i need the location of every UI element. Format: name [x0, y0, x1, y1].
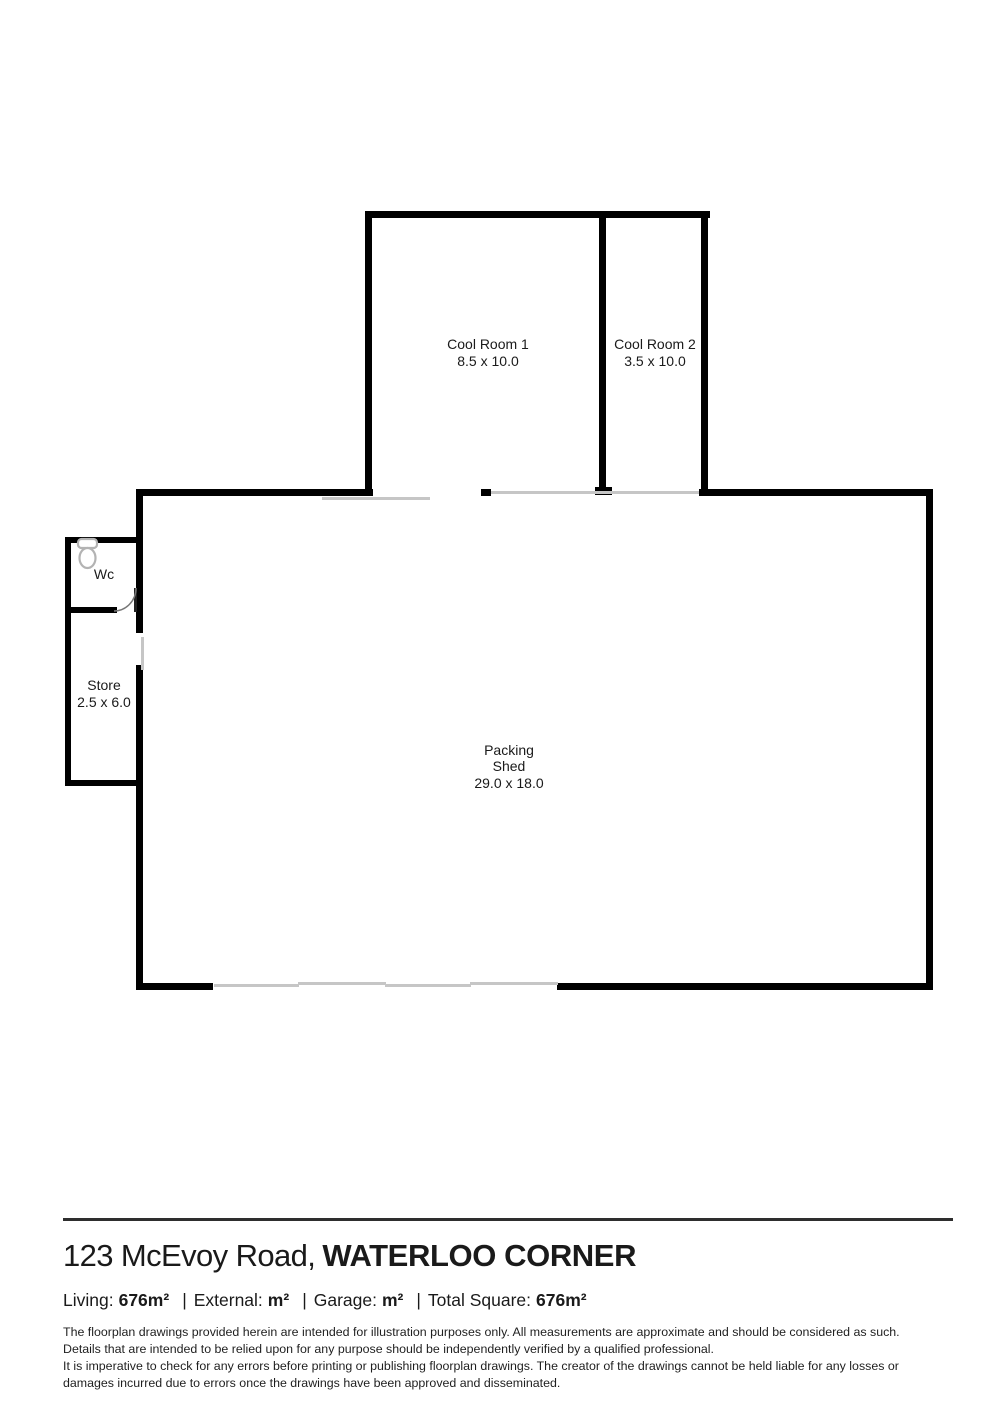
wc-door	[114, 588, 137, 612]
cool-room-1-dimensions: 8.5 x 10.0	[457, 353, 519, 369]
door-swing-arc	[114, 588, 136, 611]
packing-shed-label-line1: Packing	[484, 742, 534, 758]
total-square-label: Total Square:	[428, 1290, 531, 1310]
toilet-icon	[78, 539, 97, 568]
area-stats: Living:676m²|External:m²|Garage:m²|Total…	[63, 1290, 587, 1311]
stats-separator: |	[182, 1290, 187, 1310]
disclaimer-line: Details that are intended to be relied u…	[63, 1341, 948, 1358]
stats-separator: |	[302, 1290, 307, 1310]
garage-label: Garage:	[314, 1290, 377, 1310]
cool-room-1-label: Cool Room 1	[447, 336, 529, 352]
cool-room-2-label: Cool Room 2	[614, 336, 696, 352]
title-suburb: WATERLOO CORNER	[322, 1238, 636, 1273]
disclaimer-line: The floorplan drawings provided herein a…	[63, 1324, 948, 1341]
disclaimer-line: It is imperative to check for any errors…	[63, 1358, 948, 1375]
living-value: 676m²	[119, 1290, 170, 1310]
external-value: m²	[268, 1290, 289, 1310]
external-label: External:	[194, 1290, 263, 1310]
packing-shed-dimensions: 29.0 x 18.0	[474, 775, 543, 791]
store-dimensions: 2.5 x 6.0	[77, 694, 131, 710]
cool-room-2-dimensions: 3.5 x 10.0	[624, 353, 686, 369]
store-label: Store	[87, 677, 121, 693]
title-address: 123 McEvoy Road,	[63, 1238, 315, 1273]
floorplan-drawing: Cool Room 1 8.5 x 10.0 Cool Room 2 3.5 x…	[0, 0, 1000, 1200]
wall-openings	[141, 491, 699, 987]
disclaimer-paragraph-1: The floorplan drawings provided herein a…	[63, 1324, 948, 1357]
garage-value: m²	[382, 1290, 403, 1310]
total-square-value: 676m²	[536, 1290, 587, 1310]
stats-separator: |	[416, 1290, 421, 1310]
wc-label: Wc	[94, 566, 114, 582]
disclaimer-paragraph-2: It is imperative to check for any errors…	[63, 1358, 948, 1391]
living-label: Living:	[63, 1290, 114, 1310]
packing-shed-label-line2: Shed	[493, 758, 526, 774]
packing-shed-walls	[136, 489, 933, 990]
footer-divider	[63, 1218, 953, 1221]
page-title: 123 McEvoy Road,WATERLOO CORNER	[63, 1238, 636, 1274]
disclaimer-line: damages incurred due to errors once the …	[63, 1375, 948, 1392]
